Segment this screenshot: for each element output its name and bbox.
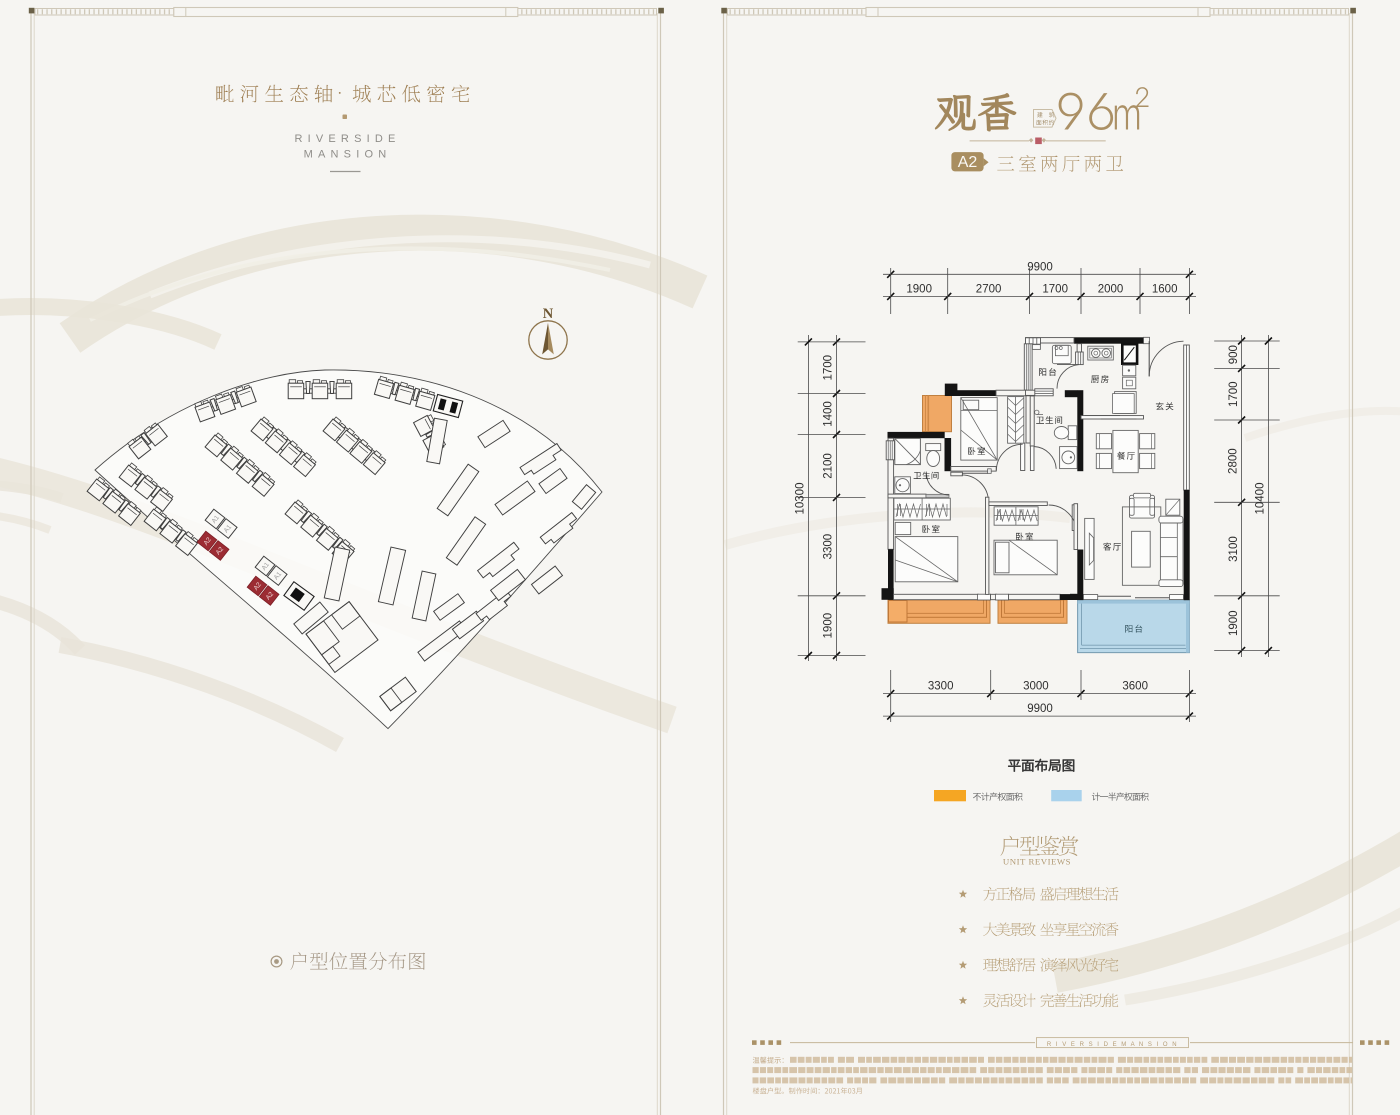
svg-text:2700: 2700 (976, 283, 1002, 295)
svg-text:10400: 10400 (1255, 483, 1267, 515)
svg-text:1700: 1700 (1042, 283, 1068, 295)
svg-text:2000: 2000 (1098, 283, 1124, 295)
svg-text:3100: 3100 (1228, 536, 1240, 562)
svg-text:N: N (543, 306, 554, 322)
svg-text:3300: 3300 (823, 534, 835, 560)
svg-text:MANSION: MANSION (304, 149, 392, 161)
svg-text:3600: 3600 (1122, 680, 1148, 692)
svg-text:1900: 1900 (906, 283, 932, 295)
svg-text:9900: 9900 (1027, 703, 1053, 715)
svg-text:1700: 1700 (1228, 381, 1240, 407)
svg-text:3300: 3300 (928, 680, 954, 692)
svg-text:UNIT REVIEWS: UNIT REVIEWS (1003, 857, 1071, 867)
svg-text:1700: 1700 (823, 355, 835, 381)
svg-text:1600: 1600 (1152, 283, 1178, 295)
svg-text:A2: A2 (958, 154, 978, 171)
svg-text:3000: 3000 (1023, 680, 1049, 692)
svg-text:1900: 1900 (1228, 610, 1240, 636)
svg-text:R I V E R S I D E M A N S I: R I V E R S I D E M A N S I O N (1047, 1042, 1178, 1048)
svg-text:9900: 9900 (1027, 262, 1053, 274)
svg-text:2100: 2100 (823, 453, 835, 479)
svg-text:RIVERSIDE: RIVERSIDE (294, 133, 400, 145)
svg-text:1900: 1900 (823, 613, 835, 639)
svg-text:900: 900 (1228, 345, 1240, 364)
svg-text:1400: 1400 (823, 401, 835, 427)
svg-text:2800: 2800 (1228, 448, 1240, 474)
svg-text:10300: 10300 (795, 483, 807, 515)
